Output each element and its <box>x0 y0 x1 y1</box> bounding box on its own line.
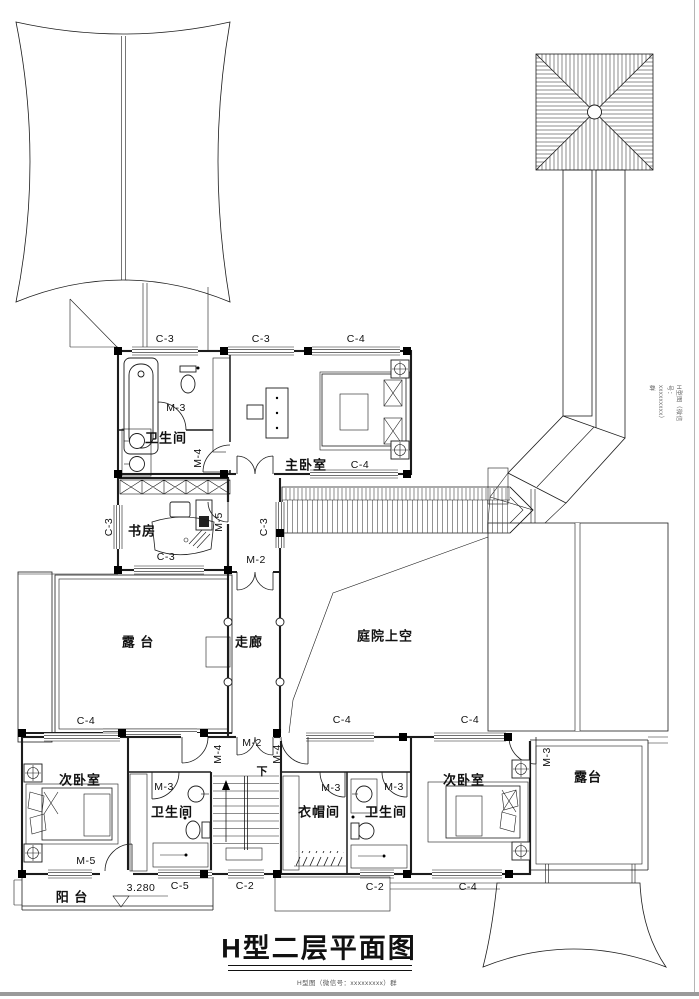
window-tag-c3-a: C-3 <box>156 333 174 345</box>
door-tag-m3-bath-left: M-3 <box>154 781 174 793</box>
elevation-value: 3.280 <box>127 882 156 894</box>
window-tag-c3-study-bottom: C-3 <box>157 551 175 563</box>
room-label-terrace-right: 露台 <box>574 767 602 786</box>
window-tag-c4-courtyard-b: C-4 <box>461 714 479 726</box>
door-tag-m3-bedroom-right: M-3 <box>541 747 553 767</box>
window-tag-c5: C-5 <box>171 880 189 892</box>
window-tag-c2-stairs: C-2 <box>236 880 254 892</box>
room-label-bath-left: 卫生间 <box>151 802 193 821</box>
door-tag-m5-study: M-5 <box>213 512 225 532</box>
window-tag-c3-corridor: C-3 <box>258 518 270 536</box>
room-label-cloakroom: 衣帽间 <box>298 802 340 821</box>
room-label-master-bedroom: 主卧室 <box>285 455 327 474</box>
window-tag-c4-courtyard-a: C-4 <box>333 714 351 726</box>
annotations-layer: C-3C-3C-4卫生间M-3M-4主卧室C-4书房C-3C-3M-5C-3M-… <box>0 0 699 999</box>
door-tag-m2-hall: M-2 <box>242 737 262 749</box>
room-label-study: 书房 <box>128 521 156 540</box>
room-label-balcony: 阳 台 <box>56 887 89 906</box>
window-tag-c3-b: C-3 <box>252 333 270 345</box>
watermark-bottom: H型图（微信号：xxxxxxxxx）群 <box>297 977 397 987</box>
floorplan-sheet: C-3C-3C-4卫生间M-3M-4主卧室C-4书房C-3C-3M-5C-3M-… <box>0 0 699 999</box>
window-tag-c4-master: C-4 <box>351 459 369 471</box>
door-tag-m4-hall-left: M-4 <box>212 744 224 764</box>
window-tag-c3-study-left: C-3 <box>103 518 115 536</box>
door-tag-m4-bath-upper: M-4 <box>192 448 204 468</box>
window-tag-c4-bedroom-right: C-4 <box>459 881 477 893</box>
room-label-bedroom2-left: 次卧室 <box>59 770 101 789</box>
room-label-bedroom2-right: 次卧室 <box>443 770 485 789</box>
room-label-bath-upper: 卫生间 <box>145 428 187 447</box>
window-tag-c2-bath-mid: C-2 <box>366 881 384 893</box>
drawing-title: H型二层平面图 <box>221 927 417 966</box>
door-tag-m3-cloakroom: M-3 <box>321 782 341 794</box>
door-tag-m2-corridor-top: M-2 <box>246 554 266 566</box>
window-tag-c4-a: C-4 <box>347 333 365 345</box>
sheet-border-right <box>694 0 695 992</box>
stairs-down-label: 下 <box>257 763 268 779</box>
sheet-border-bottom <box>0 992 699 996</box>
window-tag-c4-terrace: C-4 <box>77 715 95 727</box>
door-tag-m4-hall-right: M-4 <box>271 744 283 764</box>
door-tag-m3-bath-upper: M-3 <box>166 402 186 414</box>
watermark-side: H型图（微信号：xxxxxxxxx）群 <box>648 385 684 422</box>
door-tag-m5-bedroom-left: M-5 <box>76 855 96 867</box>
room-label-bath-mid: 卫生间 <box>365 802 407 821</box>
title-underline <box>228 965 412 971</box>
room-label-terrace-left: 露 台 <box>122 632 155 651</box>
room-label-courtyard: 庭院上空 <box>357 626 413 645</box>
door-tag-m3-bath-mid: M-3 <box>384 781 404 793</box>
room-label-corridor: 走廊 <box>235 632 263 651</box>
